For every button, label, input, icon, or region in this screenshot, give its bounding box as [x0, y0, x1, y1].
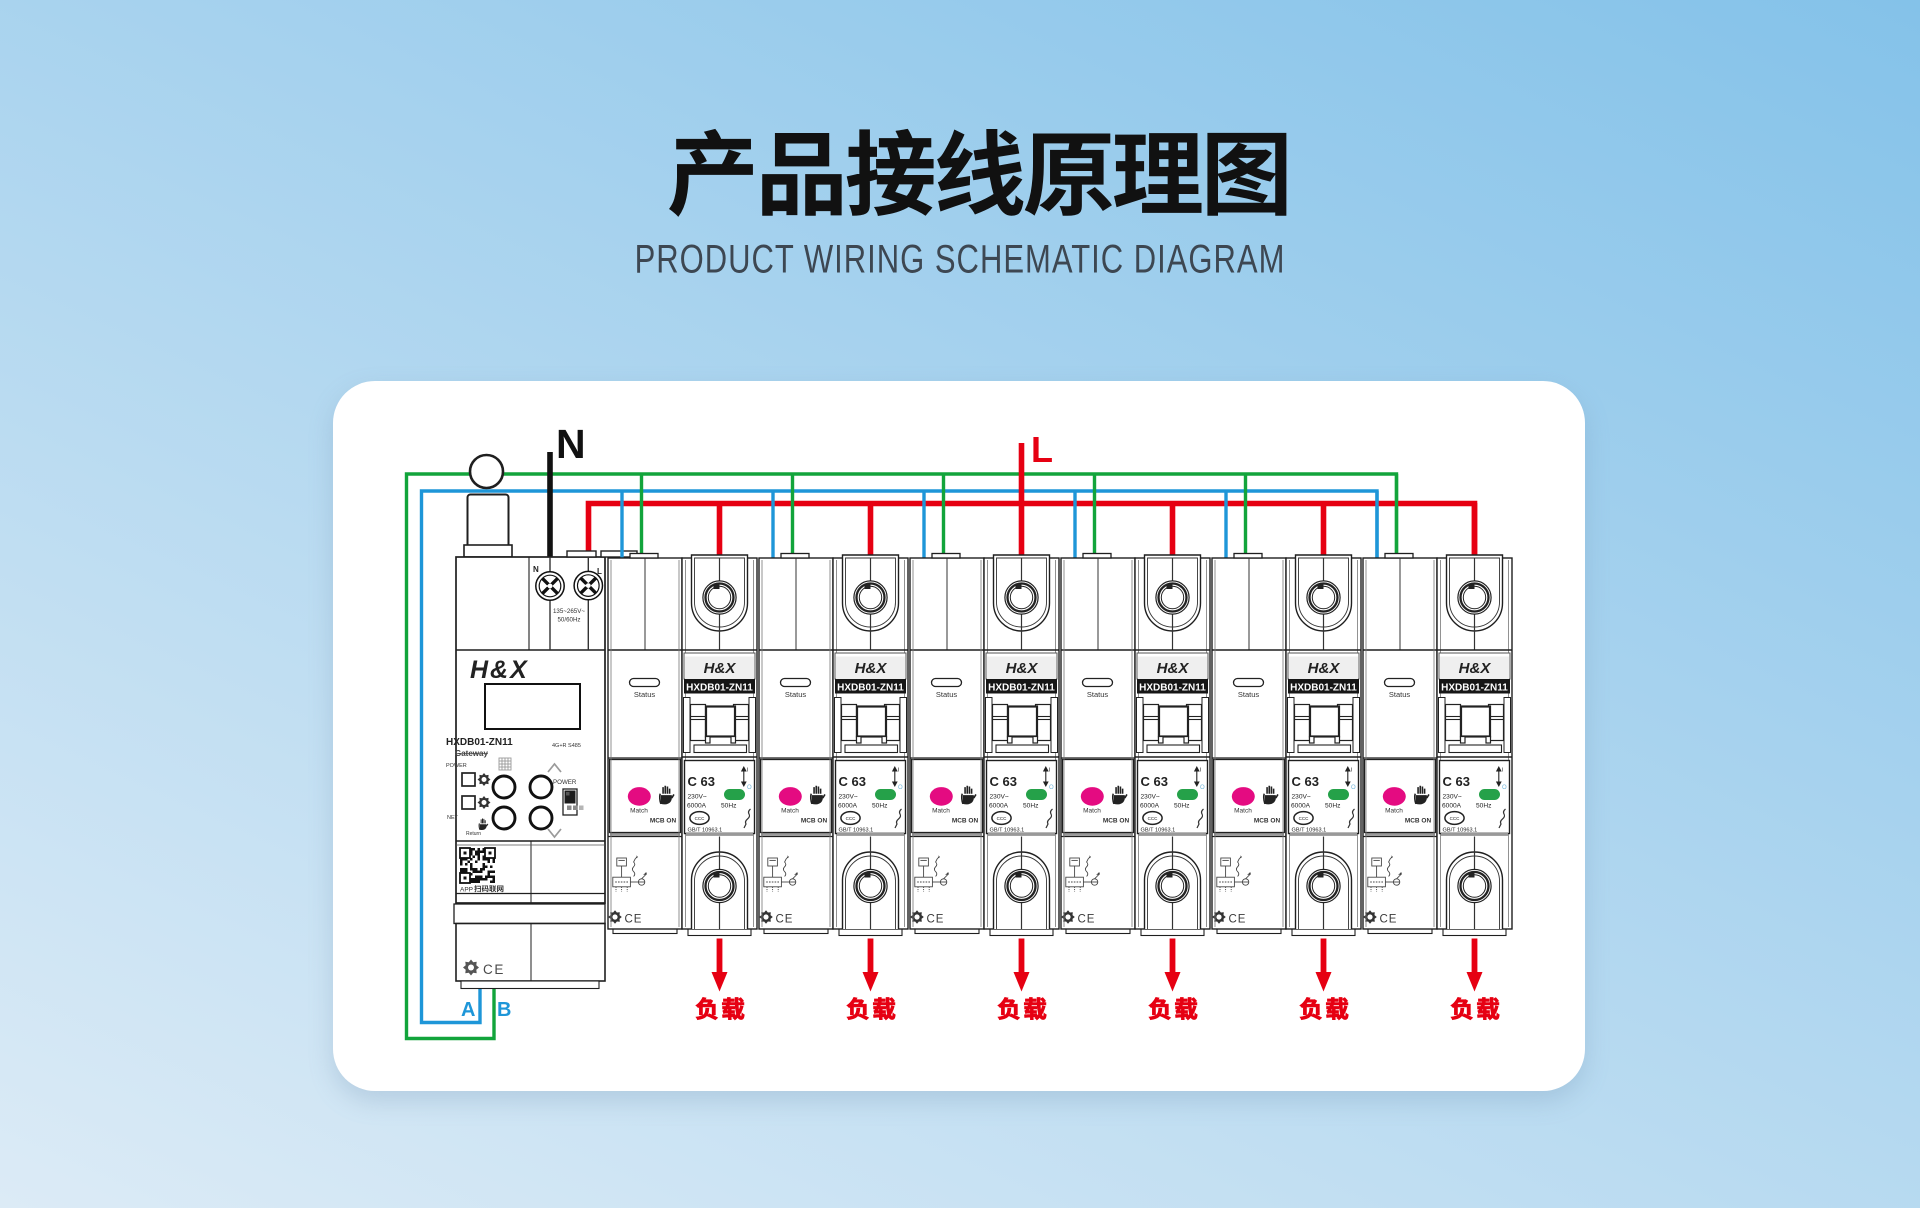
- svg-text:L: L: [1031, 429, 1053, 470]
- svg-text:50/60Hz: 50/60Hz: [557, 617, 580, 624]
- svg-text:CE: CE: [483, 962, 505, 977]
- svg-text:HXDB01-ZN11: HXDB01-ZN11: [446, 737, 513, 748]
- svg-text:Gateway: Gateway: [455, 749, 488, 758]
- svg-text:135~265V~: 135~265V~: [553, 608, 585, 615]
- svg-text:A: A: [461, 999, 475, 1021]
- svg-text:POWER: POWER: [446, 763, 467, 769]
- svg-text:APP: APP: [460, 887, 473, 894]
- svg-text:N: N: [556, 421, 586, 467]
- svg-text:B: B: [497, 999, 511, 1021]
- svg-text:NET: NET: [447, 815, 459, 821]
- svg-text:Return: Return: [466, 831, 481, 837]
- svg-text:4G+R S485: 4G+R S485: [552, 743, 581, 749]
- svg-text:N: N: [533, 565, 539, 574]
- svg-text:L: L: [597, 567, 602, 576]
- svg-text:H&X: H&X: [470, 656, 529, 684]
- svg-text:POWER: POWER: [553, 779, 577, 786]
